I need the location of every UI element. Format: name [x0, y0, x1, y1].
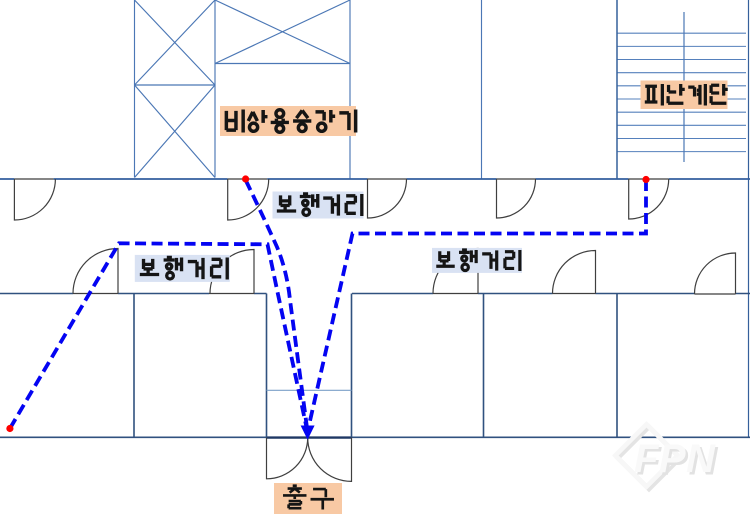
- svg-text:FPN: FPN: [634, 437, 716, 481]
